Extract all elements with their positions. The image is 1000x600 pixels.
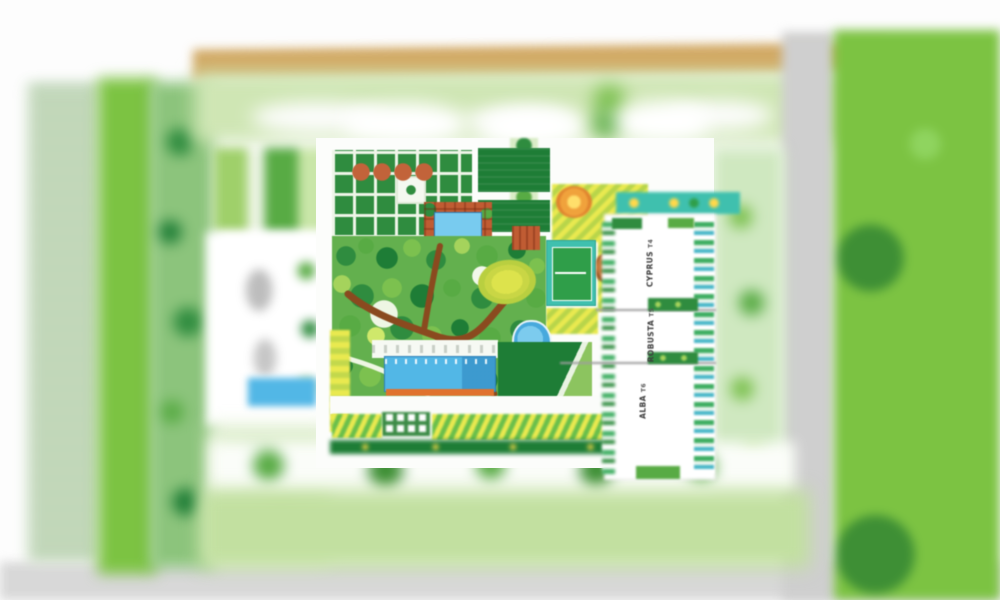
circular-play-feature xyxy=(556,186,592,218)
tower-name: ALBA xyxy=(639,395,648,419)
tower-code: T5 xyxy=(649,308,656,317)
tennis-court xyxy=(546,240,596,306)
tower-hedge xyxy=(668,218,694,228)
striped-lawn-south xyxy=(546,308,598,334)
tower-edge-planters xyxy=(602,222,615,474)
amenity-court-band xyxy=(616,192,740,214)
tower-name: CYPRUS xyxy=(646,251,655,287)
south-lawn-band xyxy=(200,490,810,568)
tower-code: T4 xyxy=(648,239,655,248)
tower-code: T6 xyxy=(641,383,648,392)
pergola-deck xyxy=(382,412,430,436)
tower-hedge xyxy=(648,298,698,311)
left-parking-strip xyxy=(28,85,100,563)
tower-balcony-strip xyxy=(694,222,714,474)
garden-pavilion xyxy=(512,226,540,250)
left-green-buffer xyxy=(98,78,156,574)
striped-band-left xyxy=(332,414,382,438)
tower-label-alba: ALBA T6 xyxy=(639,383,648,419)
tennis-net-line xyxy=(555,272,586,274)
planter-circles xyxy=(350,160,434,184)
tower-hedge xyxy=(648,352,698,364)
lap-pool xyxy=(384,356,496,392)
siteplan-canvas: CYPRUS T4 ROBUSTA T5 ALBA T6 xyxy=(0,0,1000,600)
west-hedge-garden xyxy=(214,148,326,232)
north-lawn-panel xyxy=(478,148,550,192)
tower-label-robusta: ROBUSTA T5 xyxy=(647,308,656,363)
tower-hedge xyxy=(636,466,680,479)
right-green-field xyxy=(834,30,1000,600)
tower-name: ROBUSTA xyxy=(647,320,656,363)
tennis-court-surface xyxy=(552,247,592,301)
west-pool xyxy=(246,376,318,408)
tower-hedge xyxy=(612,218,642,229)
tower-label-cyprus: CYPRUS T4 xyxy=(646,239,655,287)
lap-pool-deck-strip xyxy=(386,389,494,396)
